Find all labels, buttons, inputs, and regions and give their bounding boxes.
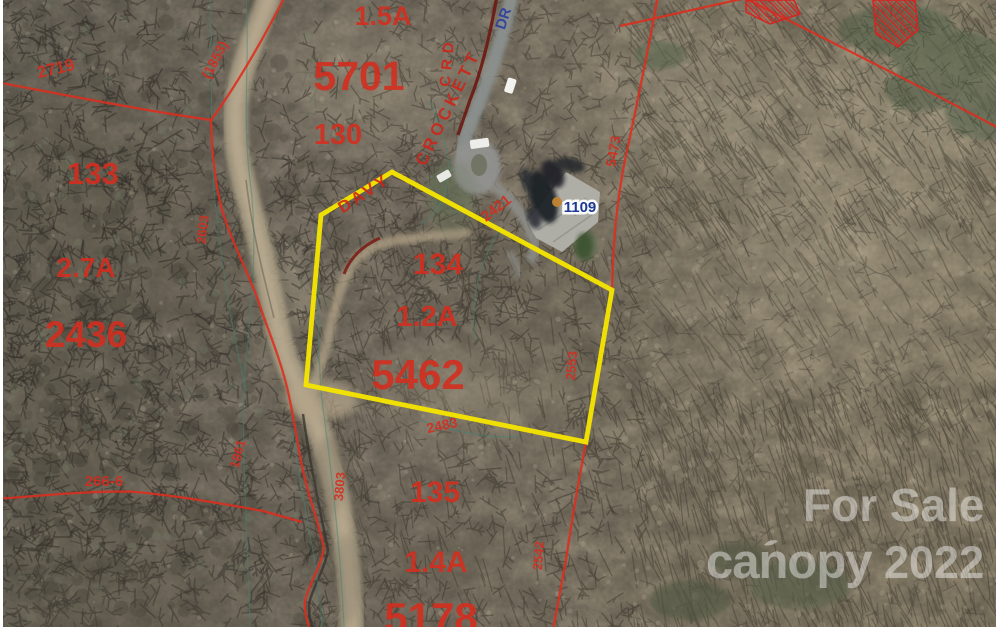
svg-text:1.4A: 1.4A bbox=[404, 546, 467, 579]
svg-text:1109: 1109 bbox=[564, 199, 597, 216]
svg-text:266-6: 266-6 bbox=[85, 473, 123, 490]
svg-text:2436: 2436 bbox=[45, 314, 127, 355]
svg-text:canopy: canopy bbox=[706, 535, 872, 589]
svg-text:5701: 5701 bbox=[313, 53, 404, 99]
svg-text:For Sale: For Sale bbox=[803, 479, 985, 531]
svg-text:1.2A: 1.2A bbox=[396, 301, 457, 333]
svg-text:1.5A: 1.5A bbox=[354, 1, 411, 31]
svg-text:3803: 3803 bbox=[331, 472, 348, 502]
svg-text:2553: 2553 bbox=[563, 351, 580, 381]
svg-text:130: 130 bbox=[314, 119, 362, 151]
svg-text:134: 134 bbox=[413, 248, 463, 281]
svg-text:5178: 5178 bbox=[384, 594, 477, 627]
svg-text:135: 135 bbox=[410, 476, 460, 509]
svg-text:5462: 5462 bbox=[371, 351, 464, 398]
svg-text:133: 133 bbox=[67, 156, 119, 191]
svg-text:2022: 2022 bbox=[884, 537, 984, 588]
svg-text:2542: 2542 bbox=[530, 541, 547, 571]
svg-text:2.7A: 2.7A bbox=[56, 252, 115, 283]
